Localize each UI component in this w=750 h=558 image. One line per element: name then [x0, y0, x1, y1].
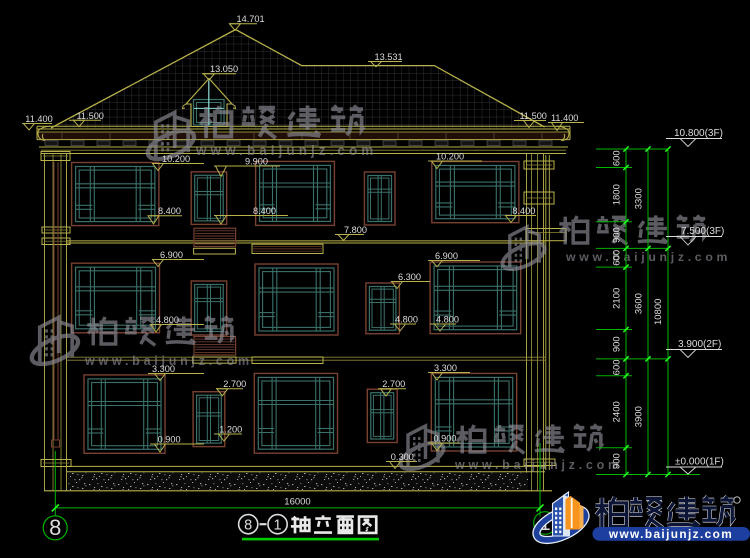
svg-text:4.800: 4.800 — [156, 315, 179, 325]
svg-text:8: 8 — [49, 515, 61, 540]
svg-text:3900: 3900 — [634, 406, 645, 427]
svg-text:10800: 10800 — [653, 299, 664, 325]
svg-text:6.300: 6.300 — [398, 272, 421, 282]
svg-text:600: 600 — [612, 359, 623, 375]
svg-text:900: 900 — [612, 227, 623, 243]
svg-text:4.800: 4.800 — [436, 315, 459, 325]
svg-text:11.500: 11.500 — [520, 111, 547, 121]
svg-text:www.baijunjz.com: www.baijunjz.com — [454, 458, 623, 472]
svg-text:14.701: 14.701 — [237, 14, 265, 24]
svg-text:11.400: 11.400 — [551, 113, 578, 123]
svg-text:±0.000(1F): ±0.000(1F) — [675, 457, 724, 468]
svg-text:3.300: 3.300 — [152, 364, 175, 374]
svg-text:0.900: 0.900 — [158, 435, 181, 445]
svg-text:3.300: 3.300 — [434, 363, 457, 373]
svg-text:3.900(2F): 3.900(2F) — [678, 339, 721, 350]
svg-text:8.400: 8.400 — [512, 206, 535, 216]
svg-text:2400: 2400 — [612, 401, 623, 422]
svg-text:11.400: 11.400 — [25, 114, 52, 124]
svg-text:3300: 3300 — [634, 188, 645, 209]
svg-text:900: 900 — [612, 453, 623, 469]
svg-text:1800: 1800 — [612, 184, 623, 205]
svg-text:0.900: 0.900 — [434, 434, 457, 444]
svg-text:10.200: 10.200 — [162, 154, 190, 164]
svg-text:900: 900 — [612, 336, 623, 352]
svg-text:7.800: 7.800 — [344, 225, 367, 235]
svg-text:1: 1 — [274, 517, 282, 533]
svg-text:2.700: 2.700 — [382, 379, 405, 389]
svg-text:8.400: 8.400 — [158, 206, 181, 216]
svg-text:4.800: 4.800 — [395, 315, 418, 325]
svg-text:10.800(3F): 10.800(3F) — [674, 128, 723, 139]
svg-text:16000: 16000 — [284, 497, 310, 508]
svg-text:600: 600 — [612, 150, 623, 166]
svg-text:6.900: 6.900 — [160, 250, 183, 260]
svg-text:10.200: 10.200 — [436, 152, 464, 162]
svg-text:7.500(3F): 7.500(3F) — [681, 226, 724, 237]
svg-text:600: 600 — [612, 250, 623, 266]
svg-text:6.900: 6.900 — [435, 251, 458, 261]
svg-text:2100: 2100 — [612, 288, 623, 309]
svg-text:1.200: 1.200 — [219, 425, 242, 435]
svg-text:13.531: 13.531 — [375, 52, 403, 62]
svg-text:0.300: 0.300 — [391, 452, 414, 462]
svg-text:www.baijunjz.com: www.baijunjz.com — [608, 527, 733, 541]
svg-text:www.baijunjz.com: www.baijunjz.com — [195, 143, 377, 158]
svg-text:11.500: 11.500 — [77, 111, 104, 121]
svg-text:8: 8 — [244, 517, 252, 533]
svg-text:13.050: 13.050 — [210, 64, 238, 74]
svg-text:8.400: 8.400 — [253, 206, 276, 216]
svg-text:9.900: 9.900 — [245, 157, 268, 167]
svg-text:3600: 3600 — [634, 293, 645, 314]
svg-text:2.700: 2.700 — [223, 379, 246, 389]
